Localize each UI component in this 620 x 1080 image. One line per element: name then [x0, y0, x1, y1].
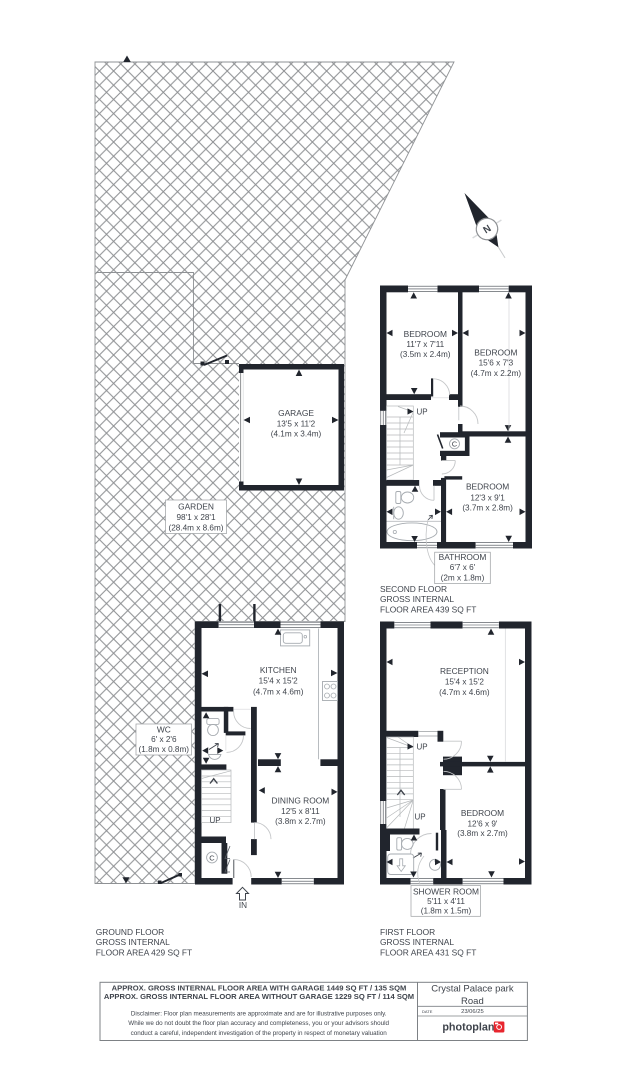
svg-text:GARAGE: GARAGE: [278, 408, 314, 418]
svg-text:11'7 x 7'11: 11'7 x 7'11: [406, 340, 444, 349]
svg-text:(4.7m x 4.6m): (4.7m x 4.6m): [253, 687, 304, 696]
svg-text:5'11 x 4'11: 5'11 x 4'11: [427, 897, 465, 906]
svg-text:(1.8m x 0.8m): (1.8m x 0.8m): [139, 745, 190, 754]
svg-text:IN: IN: [239, 901, 247, 910]
svg-text:UP: UP: [416, 743, 427, 752]
svg-text:(1.8m x 1.5m): (1.8m x 1.5m): [421, 907, 472, 916]
svg-text:RECEPTION: RECEPTION: [440, 666, 489, 676]
svg-text:GROSS INTERNAL: GROSS INTERNAL: [96, 937, 170, 947]
svg-text:APPROX. GROSS INTERNAL FLOOR A: APPROX. GROSS INTERNAL FLOOR AREA WITHOU…: [104, 992, 414, 1001]
svg-text:(4.7m x 2.2m): (4.7m x 2.2m): [471, 369, 522, 378]
svg-text:UP: UP: [416, 408, 427, 417]
svg-text:BEDROOM: BEDROOM: [474, 348, 517, 358]
svg-text:15'4 x 15'2: 15'4 x 15'2: [445, 678, 485, 687]
svg-text:While we do not doubt the floo: While we do not doubt the floor plan acc…: [128, 1020, 389, 1027]
svg-text:(2m x 1.8m): (2m x 1.8m): [441, 573, 485, 582]
svg-text:(3.7m x 2.8m): (3.7m x 2.8m): [462, 504, 513, 513]
svg-text:UP: UP: [209, 816, 220, 825]
svg-text:6' x 2'6: 6' x 2'6: [151, 735, 177, 744]
svg-text:BATHROOM: BATHROOM: [439, 552, 487, 562]
svg-text:BEDROOM: BEDROOM: [404, 329, 447, 339]
svg-text:DINING ROOM: DINING ROOM: [272, 796, 330, 806]
svg-text:BEDROOM: BEDROOM: [461, 808, 504, 818]
svg-text:6'7 x 6': 6'7 x 6': [450, 563, 476, 572]
svg-text:(3.5m x 2.4m): (3.5m x 2.4m): [400, 350, 451, 359]
svg-text:GROSS INTERNAL: GROSS INTERNAL: [380, 937, 454, 947]
svg-text:98'1 x 28'1: 98'1 x 28'1: [176, 513, 216, 522]
svg-text:KITCHEN: KITCHEN: [260, 665, 297, 675]
svg-text:12'5 x 8'11: 12'5 x 8'11: [281, 807, 320, 816]
svg-text:SECOND FLOOR: SECOND FLOOR: [380, 584, 447, 594]
svg-text:(4.7m x 4.6m): (4.7m x 4.6m): [439, 688, 490, 697]
svg-text:Crystal Palace park: Crystal Palace park: [431, 983, 514, 994]
svg-text:(3.8m x 2.7m): (3.8m x 2.7m): [275, 817, 326, 826]
svg-text:photoplan: photoplan: [442, 1022, 494, 1034]
svg-text:GROSS INTERNAL: GROSS INTERNAL: [380, 594, 454, 604]
svg-text:FLOOR AREA 439 SQ FT: FLOOR AREA 439 SQ FT: [380, 604, 476, 614]
svg-text:15'6 x 7'3: 15'6 x 7'3: [479, 359, 514, 368]
svg-text:conduct a careful, independent: conduct a careful, independent investiga…: [131, 1030, 388, 1037]
svg-text:C: C: [209, 853, 215, 862]
svg-text:23/06/25: 23/06/25: [461, 1009, 484, 1015]
svg-text:FIRST FLOOR: FIRST FLOOR: [380, 927, 435, 937]
svg-text:Road: Road: [461, 996, 484, 1007]
svg-text:C: C: [452, 440, 458, 449]
svg-text:15'4 x 15'2: 15'4 x 15'2: [259, 677, 299, 686]
svg-text:GARDEN: GARDEN: [178, 502, 214, 512]
svg-text:WC: WC: [157, 724, 171, 734]
svg-text:(3.8m x 2.7m): (3.8m x 2.7m): [457, 829, 508, 838]
svg-text:12'6 x 9': 12'6 x 9': [468, 819, 498, 828]
svg-text:DATE: DATE: [422, 1009, 433, 1014]
svg-text:BEDROOM: BEDROOM: [466, 481, 509, 491]
svg-text:12'3 x 9'1: 12'3 x 9'1: [470, 493, 505, 502]
svg-text:UP: UP: [414, 813, 425, 822]
svg-text:(28.4m x 8.6m): (28.4m x 8.6m): [168, 524, 223, 533]
svg-text:Disclaimer: Floor plan measure: Disclaimer: Floor plan measurements are …: [131, 1011, 387, 1018]
svg-text:SHOWER ROOM: SHOWER ROOM: [413, 886, 479, 896]
svg-text:FLOOR AREA 429 SQ FT: FLOOR AREA 429 SQ FT: [96, 947, 192, 957]
svg-text:13'5 x 11'2: 13'5 x 11'2: [277, 420, 316, 429]
svg-text:GROUND FLOOR: GROUND FLOOR: [96, 927, 164, 937]
svg-text:(4.1m x 3.4m): (4.1m x 3.4m): [271, 429, 322, 438]
svg-text:FLOOR AREA 431 SQ FT: FLOOR AREA 431 SQ FT: [380, 947, 476, 957]
